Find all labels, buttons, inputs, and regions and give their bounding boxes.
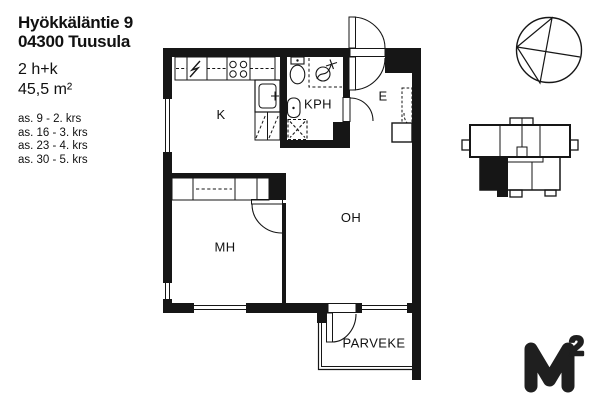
bathroom-door	[343, 98, 373, 122]
shower-zone-line	[309, 58, 342, 87]
stove-icon	[230, 61, 247, 77]
room-label-entry: E	[378, 89, 387, 104]
entrance-door	[349, 17, 385, 90]
washbasin-icon	[288, 98, 301, 118]
entry-wardrobe	[402, 88, 412, 127]
floor-plan-drawing: K KPH E OH MH PARVEKE	[0, 0, 600, 400]
logo-m-glyph	[531, 349, 568, 386]
shower-icon	[316, 60, 337, 82]
window-bedroom-bottom	[193, 303, 247, 313]
sink-icon	[255, 80, 280, 112]
building-key-plan	[462, 118, 578, 197]
bedroom-wardrobe	[172, 178, 269, 200]
window-living-room	[361, 303, 408, 313]
room-label-bedroom: MH	[214, 240, 235, 255]
room-label-balcony: PARVEKE	[342, 336, 405, 351]
logo-exponent: 2	[569, 331, 584, 361]
room-label-bathroom: KPH	[304, 97, 332, 112]
floor-plan-page: Hyökkäläntie 9 04300 Tuusula 2 h+k 45,5 …	[0, 0, 600, 400]
apartment-location-marker	[480, 158, 508, 197]
kitchen-fixtures	[175, 57, 280, 140]
bedroom-door	[252, 200, 283, 234]
compass-icon	[517, 18, 582, 84]
toilet-icon	[290, 57, 305, 84]
fridge-icon	[190, 61, 200, 77]
room-label-kitchen: K	[216, 107, 225, 122]
window-bedroom-side	[163, 282, 172, 300]
corner-cabinet-icon	[255, 112, 280, 140]
washing-machine-icon	[288, 120, 307, 140]
entry-cabinet	[392, 123, 412, 142]
m2-logo: 2	[531, 331, 584, 386]
room-label-living-room: OH	[341, 210, 361, 225]
window-kitchen	[163, 98, 172, 153]
